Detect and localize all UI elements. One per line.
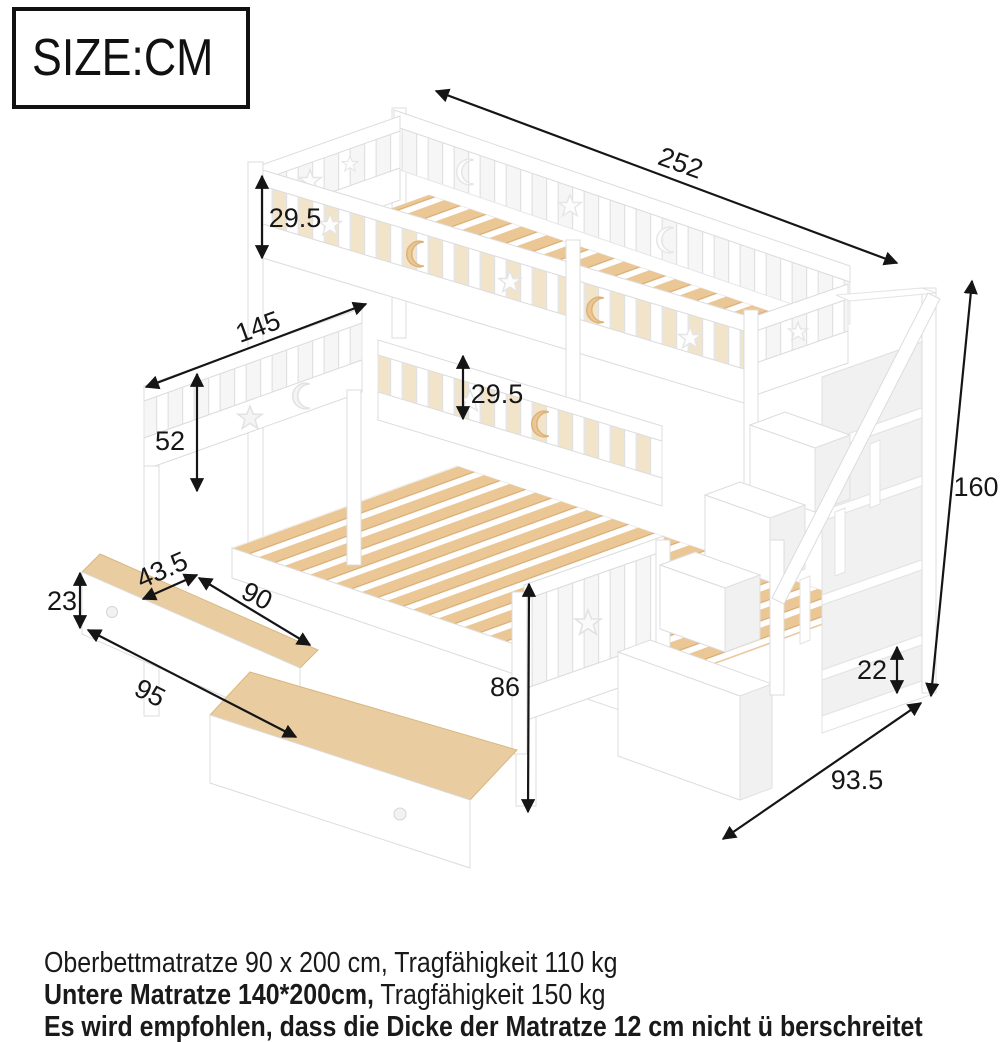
mattress-notes: Oberbettmatratze 90 x 200 cm, Tragfähigk… [44, 946, 994, 1042]
note-thickness-recommendation: Es wird empfohlen, dass die Dicke der Ma… [44, 1012, 861, 1042]
drawer-knob [394, 808, 406, 820]
dim-total-height-label: 160 [953, 472, 998, 502]
dim-under-bed-arrow [528, 584, 529, 812]
dim-total-length-label: 252 [654, 141, 707, 185]
handrail-newel-post [770, 540, 784, 695]
lower-back-left-leg [347, 390, 361, 565]
dim-lower-rail-label: 29.5 [471, 379, 524, 409]
shelf-unit-stile [922, 288, 936, 693]
size-unit-box: SIZE:CM [12, 7, 250, 109]
dim-upper-rail-label: 29.5 [269, 203, 322, 233]
note-lower-mattress-rest: Tragfähigkeit 150 kg [374, 979, 606, 1011]
dim-stair-depth-label: 93.5 [831, 765, 884, 795]
bunk-bed-dimension-diagram: 252 29.5 145 52 29.5 160 43.5 90 23 95 8… [0, 0, 1000, 1042]
dim-headboard-label: 52 [155, 426, 185, 456]
dim-drawer-front-height-label: 23 [47, 586, 77, 616]
note-upper-mattress: Oberbettmatratze 90 x 200 cm, Tragfähigk… [44, 948, 861, 979]
drawer-right [210, 672, 517, 868]
dim-drawer-front-width-label: 95 [130, 673, 170, 713]
bed-illustration: 252 29.5 145 52 29.5 160 43.5 90 23 95 8… [0, 0, 1000, 1042]
note-lower-mattress: Untere Matratze 140*200cm, Tragfähigkeit… [44, 980, 861, 1011]
dim-shelf-opening-label: 22 [857, 655, 887, 685]
dim-under-bed-label: 86 [490, 672, 520, 702]
note-lower-mattress-bold: Untere Matratze 140*200cm, [44, 979, 374, 1011]
size-unit-label: SIZE:CM [32, 28, 213, 88]
drawer-knob [107, 607, 118, 618]
